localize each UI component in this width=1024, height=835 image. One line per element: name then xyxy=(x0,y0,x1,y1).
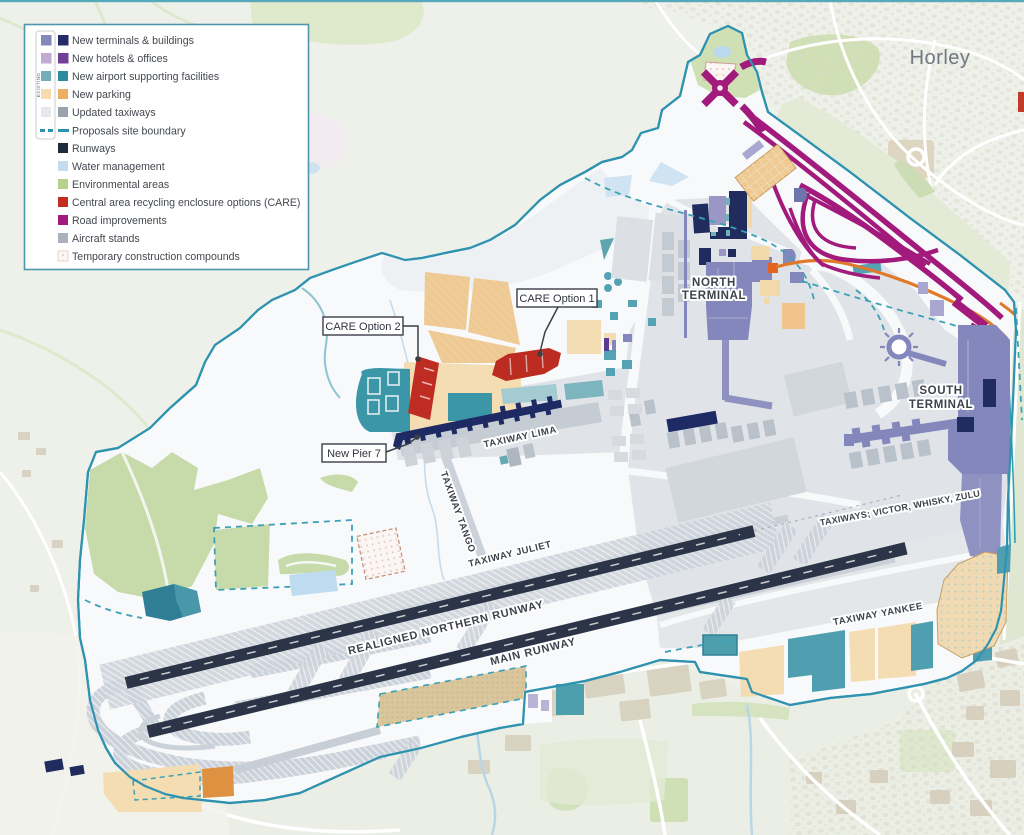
svg-text:New airport supporting facilit: New airport supporting facilities xyxy=(72,71,219,83)
svg-text:Water management: Water management xyxy=(72,161,165,173)
svg-text:Runways: Runways xyxy=(72,143,116,155)
svg-text:NORTH: NORTH xyxy=(692,277,736,289)
svg-text:New Pier 7: New Pier 7 xyxy=(327,448,381,460)
svg-text:TERMINAL: TERMINAL xyxy=(909,399,973,411)
svg-text:SOUTH: SOUTH xyxy=(919,385,962,397)
svg-text:New terminals & buildings: New terminals & buildings xyxy=(72,35,194,47)
svg-text:Environmental areas: Environmental areas xyxy=(72,179,169,191)
svg-text:Horley: Horley xyxy=(910,47,971,69)
svg-text:Updated taxiways: Updated taxiways xyxy=(72,107,156,119)
svg-text:Temporary construction compoun: Temporary construction compounds xyxy=(72,251,240,263)
svg-text:CARE Option 2: CARE Option 2 xyxy=(325,321,400,333)
svg-text:Aircraft stands: Aircraft stands xyxy=(72,233,140,245)
svg-text:Road improvements: Road improvements xyxy=(72,215,167,227)
svg-text:New hotels & offices: New hotels & offices xyxy=(72,53,168,65)
svg-text:New parking: New parking xyxy=(72,89,131,101)
svg-text:TERMINAL: TERMINAL xyxy=(682,290,746,302)
svg-text:Proposals site boundary: Proposals site boundary xyxy=(72,126,186,138)
svg-text:Central area recycling enclosu: Central area recycling enclosure options… xyxy=(72,197,300,209)
svg-text:CARE Option 1: CARE Option 1 xyxy=(519,293,594,305)
